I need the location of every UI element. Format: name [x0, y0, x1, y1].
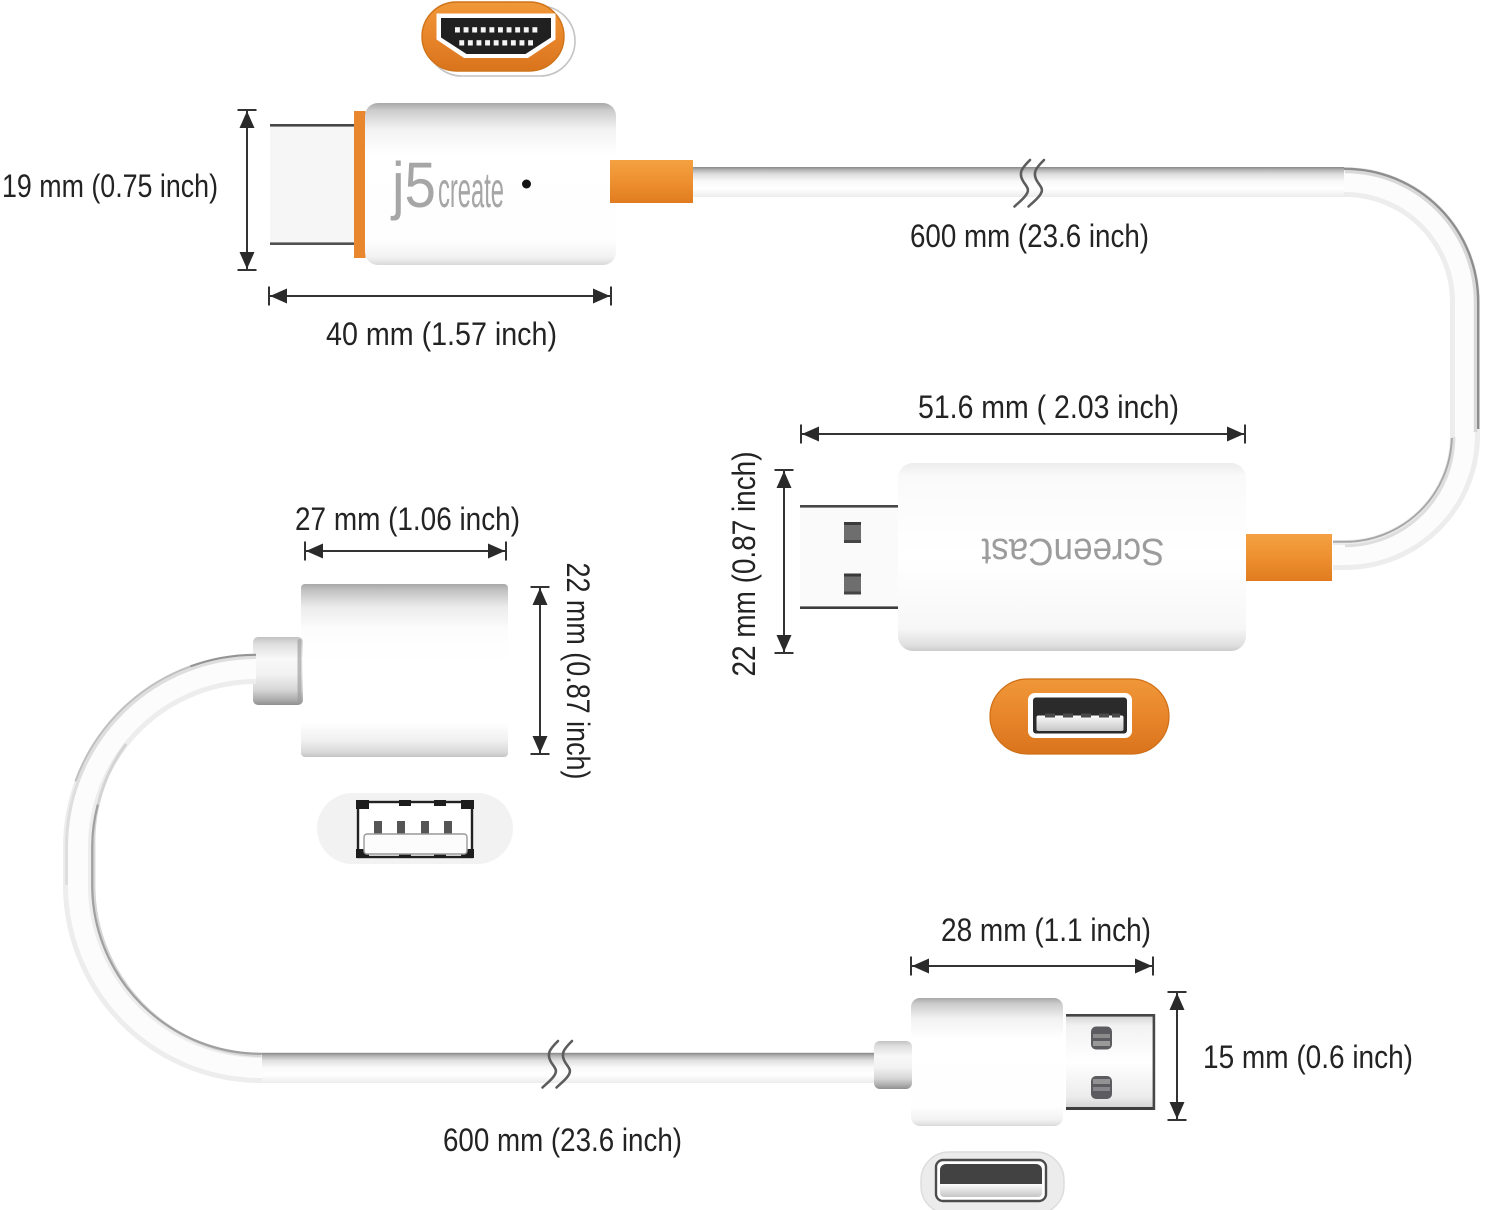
svg-text:28 mm (1.1 inch): 28 mm (1.1 inch) — [941, 912, 1151, 948]
svg-text:40 mm (1.57 inch): 40 mm (1.57 inch) — [326, 316, 557, 352]
svg-text:27 mm (1.06 inch): 27 mm (1.06 inch) — [295, 501, 520, 537]
svg-text:j5: j5 — [390, 149, 436, 221]
svg-text:600 mm (23.6 inch): 600 mm (23.6 inch) — [910, 218, 1149, 254]
svg-text:ScreenCast: ScreenCast — [981, 530, 1164, 572]
svg-text:600 mm (23.6 inch): 600 mm (23.6 inch) — [443, 1122, 682, 1158]
svg-text:51.6 mm ( 2.03 inch): 51.6 mm ( 2.03 inch) — [918, 389, 1179, 425]
svg-text:22 mm (0.87 inch): 22 mm (0.87 inch) — [726, 452, 762, 677]
svg-text:19 mm (0.75 inch): 19 mm (0.75 inch) — [2, 168, 218, 204]
svg-text:create: create — [438, 162, 504, 218]
svg-text:22 mm (0.87 inch): 22 mm (0.87 inch) — [560, 563, 596, 780]
svg-text:15 mm (0.6 inch): 15 mm (0.6 inch) — [1203, 1039, 1413, 1075]
